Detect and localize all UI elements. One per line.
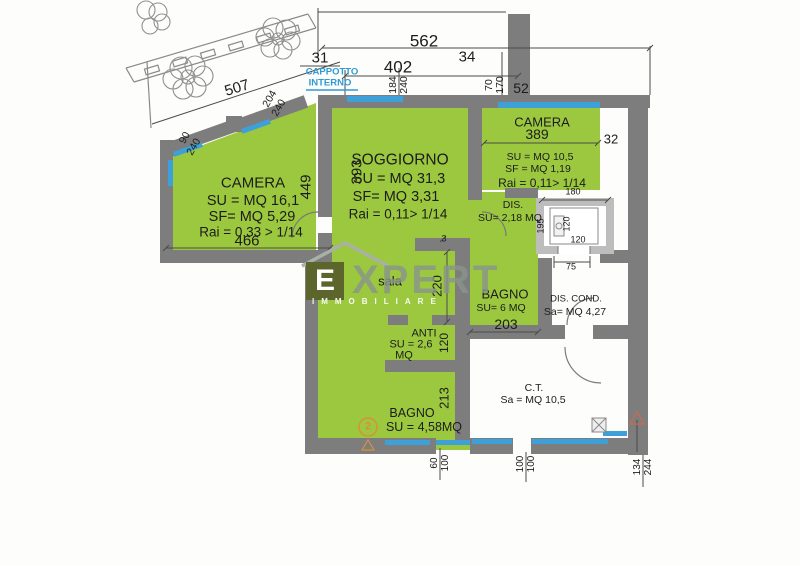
dim-window-184: 184 bbox=[388, 76, 399, 94]
room-ct-name: C.T. bbox=[525, 383, 544, 394]
dim-lift-120v: 120 bbox=[563, 216, 572, 231]
room-camera1-su: SU = MQ 16,1 bbox=[207, 194, 299, 209]
room-soggiorno-name: SOGGIORNO bbox=[351, 152, 448, 168]
dim-120-anti: 120 bbox=[438, 333, 450, 353]
dim-bottom-100c: 100 bbox=[527, 456, 537, 473]
dim-3: 3 bbox=[441, 235, 446, 244]
room-soggiorno-su: SU = MQ 31,3 bbox=[353, 172, 445, 187]
room-bagno2-name: BAGNO bbox=[389, 407, 434, 420]
floorplan-page: 562 31 402 34 507 52 CAPPOTTO INTERNO 18… bbox=[0, 0, 800, 565]
room-camera2-sf: SF = MQ 1,19 bbox=[505, 164, 571, 175]
room-anti-mq: MQ bbox=[395, 351, 413, 362]
dim-bottom-100b: 100 bbox=[516, 456, 526, 473]
room-camera2-su: SU = MQ 10,5 bbox=[507, 152, 574, 163]
dim-402: 402 bbox=[384, 59, 412, 76]
room-dis-name: DIS. bbox=[503, 200, 523, 211]
dim-bottom-100a: 100 bbox=[441, 455, 451, 472]
dim-389: 389 bbox=[525, 127, 548, 141]
watermark-subtext: IMMOBILIARE bbox=[312, 297, 443, 306]
room-camera1-name: CAMERA bbox=[221, 176, 285, 191]
dim-lift-195: 195 bbox=[537, 218, 546, 233]
watermark-logo-square: E bbox=[306, 262, 344, 300]
watermark-initial: E bbox=[315, 264, 335, 298]
dim-window-170: 170 bbox=[495, 76, 506, 94]
trees-group bbox=[137, 1, 300, 99]
dim-lift-75: 75 bbox=[566, 263, 576, 272]
note-cappotto: CAPPOTTO bbox=[306, 67, 359, 77]
room-discond-sa: Sa= MQ 4,27 bbox=[544, 307, 606, 318]
boiler-symbol bbox=[592, 418, 606, 432]
room-discond-name: DIS. COND. bbox=[550, 294, 602, 304]
dim-bottom-134: 134 bbox=[633, 459, 643, 476]
dim-393: 393 bbox=[350, 159, 365, 184]
dim-window-70: 70 bbox=[484, 79, 495, 91]
dim-window-240a: 240 bbox=[399, 76, 410, 94]
dim-bottom-244: 244 bbox=[644, 459, 654, 476]
note-interno: INTERNO bbox=[309, 78, 352, 88]
dim-52: 52 bbox=[513, 81, 529, 95]
dim-lift-120h: 120 bbox=[570, 236, 585, 245]
room-ct-sa: Sa = MQ 10,5 bbox=[500, 395, 565, 406]
room-camera1-sf: SF= MQ 5,29 bbox=[209, 210, 296, 225]
dim-449: 449 bbox=[299, 174, 314, 199]
room-bagno1-su: SU= 6 MQ bbox=[476, 303, 525, 314]
elevator-group bbox=[536, 198, 614, 254]
dim-32: 32 bbox=[604, 133, 618, 146]
room-bagno2-su: SU = 4,58MQ bbox=[386, 421, 462, 434]
room-soggiorno-sf: SF= MQ 3,31 bbox=[353, 190, 440, 205]
dim-34: 34 bbox=[459, 50, 476, 65]
dim-466: 466 bbox=[234, 234, 259, 249]
dim-total-width: 562 bbox=[410, 33, 438, 50]
dim-31: 31 bbox=[312, 51, 329, 66]
dim-213: 213 bbox=[438, 387, 451, 409]
room-dis-su: SU= 2,18 MQ bbox=[478, 213, 542, 224]
room-soggiorno-rai: Rai = 0,11> 1/14 bbox=[349, 207, 448, 221]
dim-203: 203 bbox=[494, 317, 517, 331]
dim-bottom-60: 60 bbox=[430, 457, 440, 468]
dim-lift-180: 180 bbox=[565, 188, 580, 197]
unit-number-badge: 2 bbox=[365, 422, 371, 433]
